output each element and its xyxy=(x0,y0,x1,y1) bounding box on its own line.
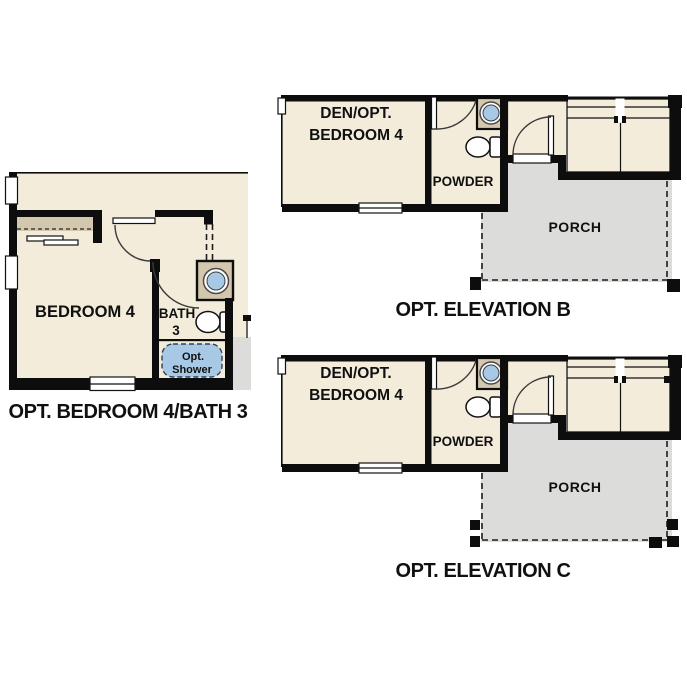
door-leaf xyxy=(549,116,554,155)
door-threshold xyxy=(513,414,551,423)
room-label-porch: PORCH xyxy=(548,479,601,495)
porch-post xyxy=(667,279,680,292)
floorplan-opt-bedroom4-bath3: BEDROOM 4 BATH 3 Opt. Shower OPT. BEDROO… xyxy=(6,172,252,423)
wall-segment xyxy=(500,95,508,212)
sink-basin xyxy=(207,272,225,290)
porch-post xyxy=(470,520,480,530)
room-label-bath-number: 3 xyxy=(172,323,180,338)
sink-basin xyxy=(483,365,499,381)
porch-post xyxy=(470,536,480,547)
shower-label-line2: Shower xyxy=(172,364,212,376)
wall-cut-tick xyxy=(614,376,618,383)
wall-cut-tick xyxy=(614,116,618,123)
plan-title-elevation-c: OPT. ELEVATION C xyxy=(395,560,570,582)
window xyxy=(6,256,18,289)
wall-cut-tick xyxy=(664,376,672,383)
porch-post xyxy=(649,537,662,548)
plan-title-elevation-b: OPT. ELEVATION B xyxy=(395,299,570,321)
room-label-den-line1: DEN/OPT. xyxy=(320,365,391,382)
room-label-powder: POWDER xyxy=(433,174,494,189)
wall-cut-tick xyxy=(622,116,626,123)
door-leaf xyxy=(432,97,437,129)
window xyxy=(278,98,286,114)
plan-title-bedroom4-bath3: OPT. BEDROOM 4/BATH 3 xyxy=(8,401,247,423)
wall-cut-tick xyxy=(243,315,251,321)
toilet-bowl xyxy=(466,397,490,417)
wall-segment xyxy=(159,339,225,341)
closet-bypass-door xyxy=(44,240,78,245)
wall-segment xyxy=(558,415,566,440)
room-label-powder: POWDER xyxy=(433,434,494,449)
door-leaf xyxy=(549,376,554,415)
room-label-den-line2: BEDROOM 4 xyxy=(309,127,403,144)
floorplan-elevation-c: DEN/OPT. BEDROOM 4 POWDER PORCH OPT. ELE… xyxy=(278,355,682,582)
hall-floor xyxy=(508,355,566,415)
door-leaf xyxy=(432,357,437,389)
wall-segment xyxy=(425,355,432,472)
toilet-bowl xyxy=(196,312,220,333)
wall-segment xyxy=(17,210,93,217)
adjacent-floor-cutout xyxy=(233,337,251,390)
door-threshold xyxy=(513,154,551,163)
toilet-tank xyxy=(490,137,501,157)
sink-basin xyxy=(483,105,499,121)
toilet-tank xyxy=(490,397,501,417)
wall-segment xyxy=(425,95,432,212)
wall-segment xyxy=(204,217,213,225)
wall-segment xyxy=(225,298,233,390)
floorplan-elevation-b: DEN/OPT. BEDROOM 4 POWDER PORCH OPT. ELE… xyxy=(278,95,682,321)
wall-segment xyxy=(93,210,102,243)
room-label-bath: BATH xyxy=(159,306,196,321)
room-label-den-line1: DEN/OPT. xyxy=(320,105,391,122)
room-label-bedroom4: BEDROOM 4 xyxy=(35,303,136,321)
wall-segment xyxy=(670,99,681,180)
room-label-porch: PORCH xyxy=(548,219,601,235)
cut-line xyxy=(568,357,672,359)
wall-segment xyxy=(670,359,681,440)
floorplan-page: BEDROOM 4 BATH 3 Opt. Shower OPT. BEDROO… xyxy=(0,0,687,687)
hall-floor xyxy=(508,95,566,155)
porch-post xyxy=(667,536,679,547)
porch-post xyxy=(470,277,481,290)
door-leaf xyxy=(113,218,155,224)
toilet-bowl xyxy=(466,137,490,157)
floorplans-canvas: BEDROOM 4 BATH 3 Opt. Shower OPT. BEDROO… xyxy=(0,0,687,687)
window xyxy=(278,358,286,374)
wall-segment xyxy=(558,155,566,180)
wall-segment xyxy=(500,355,508,472)
wall-cut-tick xyxy=(622,376,626,383)
wall-segment xyxy=(155,210,213,217)
window xyxy=(6,177,18,204)
wall-segment xyxy=(565,432,681,440)
cut-line xyxy=(9,172,248,174)
porch-post xyxy=(667,519,678,530)
shower-label-line1: Opt. xyxy=(182,351,204,363)
door-hinge-block xyxy=(150,259,160,272)
wall-segment xyxy=(565,172,681,180)
cut-line xyxy=(568,97,672,99)
room-label-den-line2: BEDROOM 4 xyxy=(309,387,403,404)
